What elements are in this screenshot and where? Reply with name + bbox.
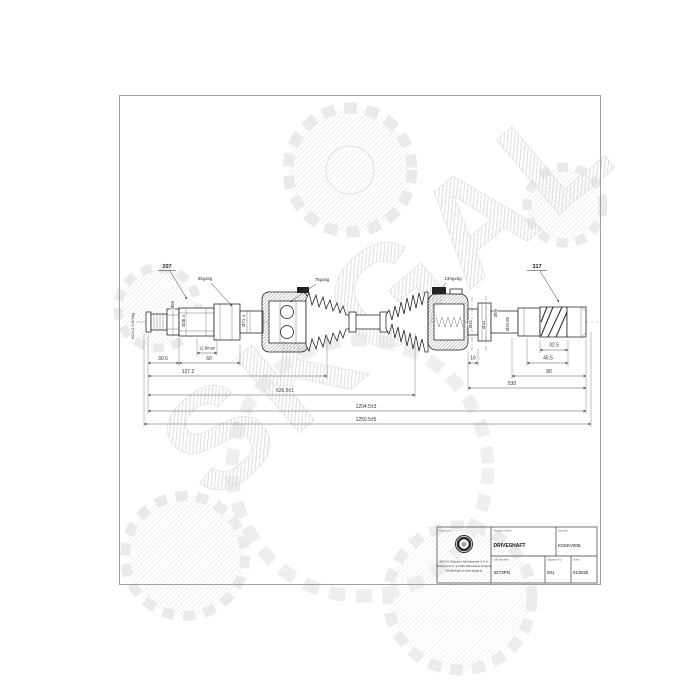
cv-ball-bottom [281,326,294,339]
grease-label-outer-boot: 75g±5g [315,277,330,282]
gear-logo-icon: ⚙ [461,541,466,548]
right-step [518,308,540,336]
dim-spline-end: 32.5 [549,343,559,349]
flange-step [214,304,240,340]
dia-stub: Ø30.4 [181,315,186,327]
grease-label-outer-joint: 90g±5g [198,276,213,281]
dim-thread-length: 30.6 [158,356,168,362]
diagram-no-value: 001 [547,570,555,575]
housing-window [434,304,464,340]
ref-label-left-joint: 207 [162,264,171,270]
product-name-label: Product name [494,529,512,533]
cv-ball-top [281,306,294,319]
dim-stub-length: 127.2 [182,369,195,375]
dim-shaft-right: 530 [508,381,517,387]
thread-spec: M24x1.5-6H/6g [130,313,135,340]
dim-spline-length: 60 [206,356,212,362]
dia-hub: Ø56 [170,300,175,309]
company-line3: info@skgal.pl www.skgal.pl [446,569,483,573]
technical-drawing-sheet: SKGAL [0,0,700,700]
threaded-stub [151,314,167,330]
date-label: Date [573,558,579,562]
dim-overall-length-2: 1250.5±5 [356,417,377,423]
washer [146,312,151,332]
dia-flange: Ø71.4 [241,315,246,327]
company-line2: Fabryczna 5, 21-400 Warszawa, Poland [437,564,491,568]
dim-overall-length: 1204.5±3 [356,404,377,410]
company-logo: ⚙ [456,536,473,553]
symbol-value: K0SKV005 [558,543,581,548]
grease-label-inner-joint: 130g±5g [444,276,462,281]
boot-clamp-inner [432,287,446,294]
product-name-value: DRIVESHAFT [494,543,526,549]
clamp-band-left [349,312,356,332]
dia-ring: Ø33 [481,320,486,329]
dia-abs-ring: Ø34.85 [505,316,510,331]
dim-spline-full: 45.5 [543,356,553,362]
oe-number-value: 3273PN [494,570,511,575]
ref-label-right-spline: 317 [532,264,541,270]
producer-label: Producer [439,529,451,533]
housing-cap [450,289,462,294]
date-value: 01/2025 [573,570,589,575]
dia-housing: Ø96 [493,308,498,317]
dim-neck-width: 16 [470,356,476,362]
dim-groove-max: 12.8max [199,346,216,351]
dim-stub-right: 80 [546,369,552,375]
symbol-label: Symbol [558,529,568,533]
company-line1: SKGAL Wojciech Michałowski S.K.A. [439,560,488,564]
oe-number-label: OE Number [494,558,509,562]
shaft-end [567,307,586,337]
dia-neck: Ø41 [468,319,473,328]
diagram-no-label: Diagram No. [547,558,562,562]
dim-joint-span: 626.5±1 [276,388,294,394]
